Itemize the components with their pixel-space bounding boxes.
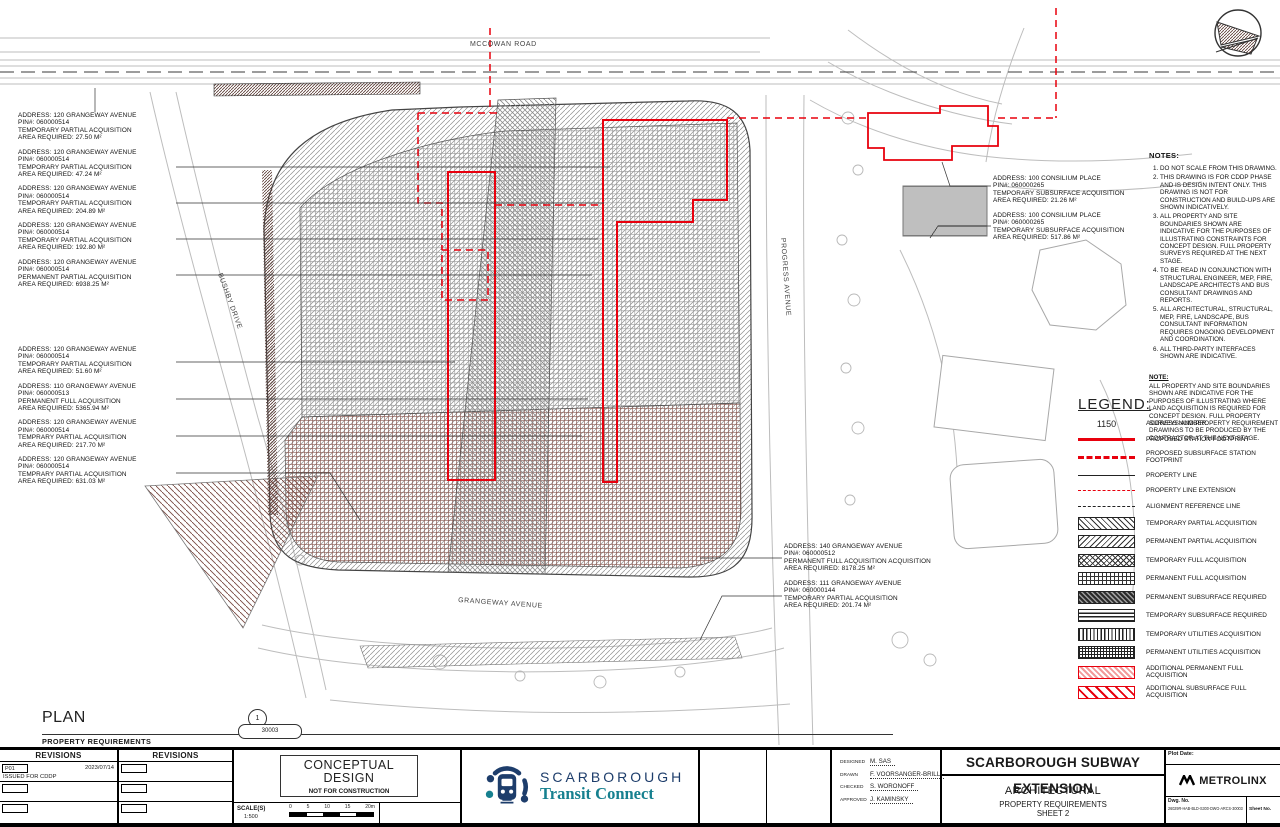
credit-role: CHECKED xyxy=(840,785,870,790)
revision-row: P01 2023/07/14 ISSUED FOR CDDP xyxy=(0,762,117,782)
legend-swatch xyxy=(1078,554,1135,567)
legend-label: PERMANENT UTILITIES ACQUISITION xyxy=(1146,649,1271,656)
property-label: ADDRESS: 120 GRANGEWAY AVENUE PIN#: 0600… xyxy=(18,112,178,142)
revision-row xyxy=(0,802,117,822)
legend-label: ADDRESS NUMBER xyxy=(1146,420,1271,427)
legend-swatch xyxy=(1078,506,1135,507)
legend-label: PROPOSED STATION FOOTPRINT xyxy=(1146,436,1271,443)
revision-row xyxy=(0,782,117,802)
revision-date: 2023/07/14 xyxy=(85,765,114,771)
property-label: ADDRESS: 111 GRANGEWAY AVENUE PIN#: 0600… xyxy=(784,580,959,610)
legend-item: PROPERTY LINE EXTENSION xyxy=(1078,486,1280,496)
legend-label: PERMANENT PARTIAL ACQUISITION xyxy=(1146,538,1271,545)
legend-item: TEMPORARY SUBSURFACE REQUIRED xyxy=(1078,609,1280,622)
legend-item: 1150 ADDRESS NUMBER xyxy=(1078,419,1280,429)
spare-panel xyxy=(698,750,830,823)
property-label: ADDRESS: 120 GRANGEWAY AVENUE PIN#: 0600… xyxy=(18,346,178,376)
note-item: ALL THIRD-PARTY INTERFACES SHOWN ARE IND… xyxy=(1160,346,1278,361)
scale-tick: 5 xyxy=(307,804,310,810)
spare-panel-divider xyxy=(766,750,767,823)
street-label-grangeway: GRANGEWAY AVENUE xyxy=(458,597,543,610)
credit-role: DESIGNED xyxy=(840,760,870,765)
legend-swatch xyxy=(1078,517,1135,530)
project-title: SCARBOROUGH SUBWAY EXTENSION xyxy=(942,750,1164,776)
property-label: ADDRESS: 140 GRANGEWAY AVENUE PIN#: 0600… xyxy=(784,543,959,573)
credit-role: DRAWN xyxy=(840,773,870,778)
legend-item: PROPERTY LINE xyxy=(1078,470,1280,480)
note-item: TO BE READ IN CONJUNCTION WITH STRUCTURA… xyxy=(1160,267,1278,304)
legend-item: PERMANENT UTILITIES ACQUISITION xyxy=(1078,646,1280,659)
legend-swatch xyxy=(1078,666,1135,679)
credit-name: J. KAMINSKY xyxy=(870,796,913,804)
stc-logo-panel: SCARBOROUGH Transit Connect xyxy=(460,750,698,823)
scale-tick: 15 xyxy=(345,804,351,810)
legend-swatch xyxy=(1078,609,1135,622)
stamp-line2: DESIGN xyxy=(281,772,417,785)
sheet-number-cell: Sheet No. xyxy=(1246,797,1280,824)
scale-tick: 10 xyxy=(324,804,330,810)
labels-right: ADDRESS: 100 CONSILIUM PLACE PIN#: 06000… xyxy=(993,175,1168,248)
credit-row: APPROVED J. KAMINSKY xyxy=(840,796,940,804)
legend-item: PROPOSED STATION FOOTPRINT xyxy=(1078,435,1280,445)
scale-tick: 0 xyxy=(289,804,292,810)
area-topleft-strip xyxy=(214,82,420,96)
conceptual-design-stamp: CONCEPTUAL DESIGN NOT FOR CONSTRUCTION xyxy=(280,755,418,797)
revision-row xyxy=(119,762,232,782)
stc-logo-line2: Transit Connect xyxy=(540,785,684,803)
transit-connect-icon xyxy=(484,764,530,810)
legend-swatch xyxy=(1078,535,1135,548)
north-arrow-icon xyxy=(1215,10,1261,56)
area-grangeway-strip xyxy=(360,637,742,668)
legend-label: PROPERTY LINE xyxy=(1146,472,1271,479)
property-label: ADDRESS: 120 GRANGEWAY AVENUE PIN#: 0600… xyxy=(18,222,178,252)
drawing-sheet: MCCOWAN ROAD BUSHBY DRIVE PROGRESS AVENU… xyxy=(0,0,1280,827)
legend-panel: LEGEND: 1150 ADDRESS NUMBER PROPOSED STA… xyxy=(1078,396,1280,705)
street-label-mccowan: MCCOWAN ROAD xyxy=(470,41,537,48)
metrolinx-name: METROLINX xyxy=(1199,775,1266,787)
legend-item: ADDITIONAL SUBSURFACE FULL ACQUISITION xyxy=(1078,685,1280,700)
legend-swatch xyxy=(1078,628,1135,641)
property-label: ADDRESS: 120 GRANGEWAY AVENUE PIN#: 0600… xyxy=(18,259,178,289)
plan-caption: PLAN PROPERTY REQUIREMENTS 1 30003 xyxy=(42,709,902,745)
legend-item: PERMANENT PARTIAL ACQUISITION xyxy=(1078,535,1280,548)
scale-strip: SCALE(S) 1:500 05101520m xyxy=(234,802,462,823)
property-label: ADDRESS: 110 GRANGEWAY AVENUE PIN#: 0600… xyxy=(18,383,178,413)
legend-swatch: 1150 xyxy=(1078,419,1135,429)
credit-name: S. WORONOFF xyxy=(870,783,918,791)
legend-swatch xyxy=(1078,490,1135,491)
legend-swatch xyxy=(1078,686,1135,699)
stamp-scale-panel: CONCEPTUAL DESIGN NOT FOR CONSTRUCTION S… xyxy=(232,750,460,823)
labels-center: ADDRESS: 140 GRANGEWAY AVENUE PIN#: 0600… xyxy=(784,543,959,616)
plot-date-label: Plot Date: xyxy=(1166,750,1280,764)
revisions-header: REVISIONS xyxy=(119,750,232,762)
legend-swatch xyxy=(1078,456,1135,459)
legend-swatch xyxy=(1078,572,1135,585)
sheet-title-panel: SCARBOROUGH SUBWAY EXTENSION ARCHITECTUR… xyxy=(940,750,1164,823)
legend-label: TEMPORARY UTILITIES ACQUISITION xyxy=(1146,631,1271,638)
sheet-number-label: Sheet No. xyxy=(1247,806,1271,812)
note-item: THIS DRAWING IS FOR CDDP PHASE AND IS DE… xyxy=(1160,174,1278,211)
note-item: ALL ARCHITECTURAL, STRUCTURAL, MEP, FIRE… xyxy=(1160,306,1278,343)
metrolinx-brand: METROLINX xyxy=(1166,764,1280,796)
issuer-panel: Plot Date: METROLINX Dwg. No. 26029R-HAB… xyxy=(1164,750,1280,823)
credit-row: CHECKED S. WORONOFF xyxy=(840,783,940,791)
legend-item: TEMPORARY FULL ACQUISITION xyxy=(1078,554,1280,567)
legend-label: PROPOSED SUBSURFACE STATION FOOTPRINT xyxy=(1146,450,1271,465)
legend-label: ADDITIONAL PERMANENT FULL ACQUISITION xyxy=(1146,665,1271,680)
legend-label: ADDITIONAL SUBSURFACE FULL ACQUISITION xyxy=(1146,685,1271,700)
scale-ratio: 1:500 xyxy=(244,814,258,820)
revision-description: ISSUED FOR CDDP xyxy=(3,774,56,780)
legend-label: TEMPORARY PARTIAL ACQUISITION xyxy=(1146,520,1271,527)
scale-bar xyxy=(289,812,374,817)
legend-label: PERMANENT SUBSURFACE REQUIRED xyxy=(1146,594,1271,601)
property-label: ADDRESS: 120 GRANGEWAY AVENUE PIN#: 0600… xyxy=(18,456,178,486)
street-label-progress: PROGRESS AVENUE xyxy=(779,238,791,317)
legend-swatch xyxy=(1078,438,1135,441)
note-item: DO NOT SCALE FROM THIS DRAWING. xyxy=(1160,165,1278,172)
plan-caption-subtitle: PROPERTY REQUIREMENTS xyxy=(42,737,151,746)
legend-item: TEMPORARY PARTIAL ACQUISITION xyxy=(1078,517,1280,530)
street-label-bushby: BUSHBY DRIVE xyxy=(216,272,243,330)
property-label: ADDRESS: 120 GRANGEWAY AVENUE PIN#: 0600… xyxy=(18,185,178,215)
legend-label: TEMPORARY SUBSURFACE REQUIRED xyxy=(1146,612,1271,619)
revision-code-empty xyxy=(121,784,147,793)
revision-row xyxy=(119,782,232,802)
revision-row xyxy=(119,802,232,822)
sheet-title-line2: SHEET 2 xyxy=(942,809,1164,818)
revisions-header: REVISIONS xyxy=(0,750,117,762)
revision-code-empty xyxy=(2,804,28,813)
legend-swatch xyxy=(1078,591,1135,604)
note-item: ALL PROPERTY AND SITE BOUNDARIES SHOWN A… xyxy=(1160,213,1278,265)
metrolinx-icon xyxy=(1179,775,1195,786)
legend-item: PROPOSED SUBSURFACE STATION FOOTPRINT xyxy=(1078,450,1280,465)
property-label: ADDRESS: 120 GRANGEWAY AVENUE PIN#: 0600… xyxy=(18,149,178,179)
legend-item: PERMANENT SUBSURFACE REQUIRED xyxy=(1078,591,1280,604)
dwg-number: 26029R-HAB-BLD-S300-DWG-ARCS-30003 xyxy=(1168,806,1243,811)
legend-title: LEGEND: xyxy=(1078,396,1280,413)
notes-list: DO NOT SCALE FROM THIS DRAWING. THIS DRA… xyxy=(1149,165,1278,361)
legend-item: ALIGNMENT REFERENCE LINE xyxy=(1078,501,1280,511)
legend-item: ADDITIONAL PERMANENT FULL ACQUISITION xyxy=(1078,665,1280,680)
title-block: REVISIONS P01 2023/07/14 ISSUED FOR CDDP… xyxy=(0,747,1280,827)
labels-left-lower: ADDRESS: 120 GRANGEWAY AVENUE PIN#: 0600… xyxy=(18,346,178,493)
property-label: ADDRESS: 100 CONSILIUM PLACE PIN#: 06000… xyxy=(993,175,1168,205)
legend-item: PERMANENT FULL ACQUISITION xyxy=(1078,572,1280,585)
credit-name: F. VOORSANGER-BRILL xyxy=(870,771,944,779)
note2-title: NOTE: xyxy=(1149,374,1278,381)
legend-label: PROPERTY LINE EXTENSION xyxy=(1146,487,1271,494)
credit-row: DRAWN F. VOORSANGER-BRILL xyxy=(840,771,940,779)
station-footprint-consilium xyxy=(868,106,998,160)
scale-ticks: 05101520m xyxy=(289,804,375,810)
property-label: ADDRESS: 100 CONSILIUM PLACE PIN#: 06000… xyxy=(993,212,1168,242)
property-label: ADDRESS: 120 GRANGEWAY AVENUE PIN#: 0600… xyxy=(18,419,178,449)
credit-row: DESIGNED M. SAS xyxy=(840,758,940,766)
revisions-panel-1: REVISIONS P01 2023/07/14 ISSUED FOR CDDP xyxy=(0,750,117,823)
dwg-label: Dwg. No. xyxy=(1168,798,1189,804)
legend-swatch xyxy=(1078,646,1135,659)
sheet-title-line1: PROPERTY REQUIREMENTS xyxy=(942,800,1164,809)
caption-rule xyxy=(42,734,893,735)
notes-title: NOTES: xyxy=(1149,152,1278,161)
credits-panel: DESIGNED M. SAS DRAWN F. VOORSANGER-BRIL… xyxy=(830,750,940,823)
legend-swatch xyxy=(1078,475,1135,476)
revision-code-empty xyxy=(2,784,28,793)
discipline: ARCHITECTURAL xyxy=(942,785,1164,797)
revisions-panel-2: REVISIONS xyxy=(117,750,232,823)
revision-code-empty xyxy=(121,764,147,773)
dwg-number-row: Dwg. No. 26029R-HAB-BLD-S300-DWG-ARCS-30… xyxy=(1166,796,1280,823)
revision-code: P01 xyxy=(2,764,28,773)
scale-tick: 20m xyxy=(365,804,375,810)
legend-label: ALIGNMENT REFERENCE LINE xyxy=(1146,503,1271,510)
legend-label: PERMANENT FULL ACQUISITION xyxy=(1146,575,1271,582)
legend-item: TEMPORARY UTILITIES ACQUISITION xyxy=(1078,628,1280,641)
scale-divider xyxy=(379,803,380,824)
stc-logo-line1: SCARBOROUGH xyxy=(540,770,684,785)
credit-role: APPROVED xyxy=(840,798,870,803)
revision-code-empty xyxy=(121,804,147,813)
plan-caption-title: PLAN xyxy=(42,709,902,727)
detail-ref-sheet: 30003 xyxy=(238,724,302,739)
stamp-line3: NOT FOR CONSTRUCTION xyxy=(281,788,417,795)
labels-left-upper: ADDRESS: 120 GRANGEWAY AVENUE PIN#: 0600… xyxy=(18,112,178,295)
legend-label: TEMPORARY FULL ACQUISITION xyxy=(1146,557,1271,564)
credit-name: M. SAS xyxy=(870,758,895,766)
scale-label: SCALE(S) xyxy=(237,806,265,812)
